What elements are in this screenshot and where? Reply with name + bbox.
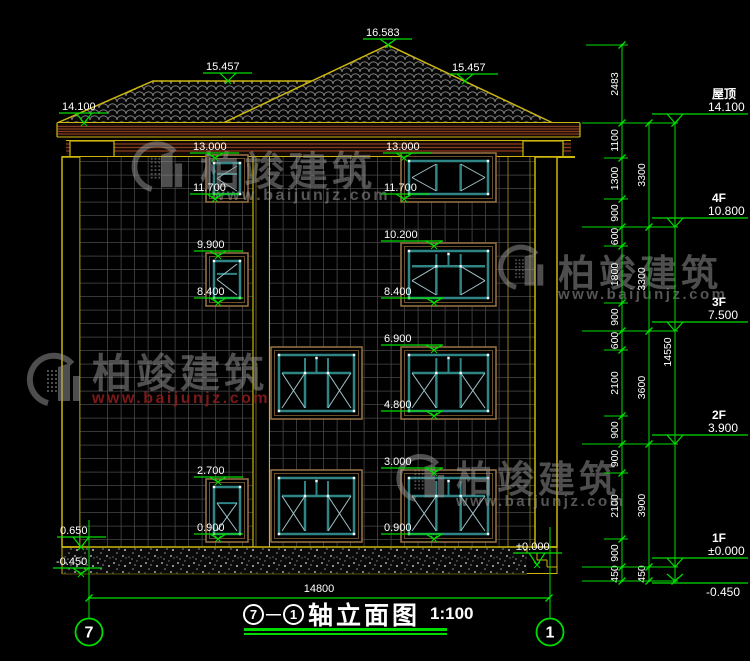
logo-window-dot (47, 370, 49, 372)
dim-chain-total: 14550 (662, 120, 679, 585)
logo-tower-2 (73, 376, 80, 401)
title-underline-thin (244, 633, 447, 635)
logo-window-dot (418, 473, 420, 475)
floor-elevation: -0.450 (706, 585, 740, 599)
logo-window-dot (415, 473, 417, 475)
floor-elevation: ±0.000 (708, 544, 745, 558)
logo-window-dot (422, 473, 424, 475)
elevation-value: -0.450 (56, 556, 87, 568)
logo-window-dot (158, 165, 160, 167)
floor-label: 4F (712, 191, 726, 205)
logo-window-dot (519, 266, 521, 268)
elevation-value: 0.650 (60, 525, 88, 537)
elevation-value: 13.000 (386, 141, 420, 153)
logo-window-dot (415, 484, 417, 486)
frame-node (487, 193, 489, 195)
logo-window-dot (55, 370, 57, 372)
window-big-transom-x (271, 347, 362, 419)
frame-node (487, 250, 489, 252)
dim-value: 3300 (636, 267, 648, 291)
frame-node (435, 495, 437, 497)
logo-window-dot (515, 276, 517, 278)
elevation-value: 8.400 (384, 286, 412, 298)
watermark-url: www.baijunjz.com (211, 187, 390, 204)
dim-value: 600 (609, 228, 621, 246)
logo-window-dot (55, 390, 57, 392)
title-scale: 1:100 (430, 604, 473, 624)
frame-node (435, 372, 437, 374)
logo-window-dot (422, 484, 424, 486)
window-big-transom-x (271, 470, 362, 542)
dim-value: 2100 (609, 371, 621, 395)
logo-window-dot (515, 263, 517, 265)
logo-window-dot (155, 177, 157, 179)
logo-window-dot (422, 488, 424, 490)
watermark-url: www.baijunjz.com (455, 493, 625, 510)
elevation-value: 3.000 (384, 456, 412, 468)
dim-value: 3900 (636, 494, 648, 518)
logo-window-dot (415, 480, 417, 482)
logo-window-dot (522, 266, 524, 268)
level-triangle (667, 114, 683, 123)
logo-window-dot (519, 276, 521, 278)
frame-node (239, 486, 241, 488)
logo-window-dot (151, 158, 153, 160)
elevation-value: 8.400 (197, 286, 225, 298)
logo-window-dot (415, 470, 417, 472)
dim-value: 450 (636, 565, 648, 583)
logo-window-dot (47, 374, 49, 376)
title-text: 轴立面图 (308, 596, 420, 632)
logo-tower-2 (537, 264, 543, 285)
logo-window-dot (51, 382, 53, 384)
logo-window-dot (418, 480, 420, 482)
elevation-value: ±0.000 (516, 541, 550, 553)
elevation-value: 9.900 (197, 239, 225, 251)
dim-value: 900 (609, 544, 621, 562)
elevation-value: 2.700 (197, 465, 225, 477)
frame-node (435, 265, 437, 267)
logo-window-dot (418, 470, 420, 472)
logo-window-dot (158, 173, 160, 175)
dim-value: 900 (609, 421, 621, 439)
dim-value: 3300 (636, 163, 648, 187)
frame-node (408, 354, 410, 356)
logo-window-dot (51, 390, 53, 392)
logo-window-dot (418, 488, 420, 490)
dim-value: 900 (609, 308, 621, 326)
marker-triangle (220, 73, 236, 81)
logo-window-dot (522, 259, 524, 261)
logo-window-dot (515, 269, 517, 271)
logo-window-dot (151, 165, 153, 167)
frame-node (239, 260, 241, 262)
logo-window-dot (151, 177, 153, 179)
floor-marker-1F: 1F±0.000 (652, 531, 748, 567)
dim-value: 2483 (609, 72, 621, 96)
logo-window-dot (519, 259, 521, 261)
floor-marker--0.450: -0.450 (652, 574, 748, 599)
dim-value: 900 (609, 204, 621, 222)
elevation-value: 10.200 (384, 229, 418, 241)
logo-window-dot (158, 162, 160, 164)
axis-end-bubble: 1 (283, 604, 304, 625)
logo-window-dot (151, 169, 153, 171)
logo-window-dot (47, 382, 49, 384)
logo-window-dot (418, 477, 420, 479)
logo-window-dot (519, 273, 521, 275)
logo-tower-2 (438, 475, 444, 498)
frame-node (213, 486, 215, 488)
logo-window-dot (55, 378, 57, 380)
logo-window-dot (415, 488, 417, 490)
dim-value: 1800 (609, 263, 621, 287)
logo-window-dot (155, 173, 157, 175)
elevation-value: 11.700 (193, 182, 226, 194)
title-separator: — (266, 606, 281, 623)
logo-window-dot (158, 177, 160, 179)
frame-node (304, 372, 306, 374)
frame-node (459, 265, 461, 267)
elevation-marker-16.583: 16.583 (363, 27, 412, 48)
logo-window-dot (155, 158, 157, 160)
logo-window-dot (55, 386, 57, 388)
watermark-url: www.baijunjz.com (91, 390, 270, 407)
logo-tower-2 (175, 163, 182, 187)
elevation-value: 4.800 (384, 399, 412, 411)
logo-window-dot (51, 370, 53, 372)
window-big-transom-x (401, 347, 496, 419)
dim-value: 600 (609, 332, 621, 350)
logo-window-dot (151, 162, 153, 164)
floor-label: 3F (712, 295, 726, 309)
dim-value: 450 (609, 565, 621, 583)
frame-node (353, 410, 355, 412)
marker-triangle (380, 39, 396, 45)
logo-window-dot (522, 263, 524, 265)
logo-window-dot (51, 386, 53, 388)
drawing-title: 7 — 1 轴立面图 1:100 (243, 601, 474, 627)
elevation-value: 13.000 (193, 141, 227, 153)
elevation-value: 15.457 (206, 61, 240, 73)
logo-window-dot (522, 273, 524, 275)
frame-node (459, 372, 461, 374)
frame-node (315, 357, 317, 359)
logo-window-dot (515, 273, 517, 275)
elevation-value: 11.700 (384, 182, 417, 194)
elevation-value: 14.100 (62, 101, 96, 113)
frame-node (327, 372, 329, 374)
frame-node (353, 477, 355, 479)
frame-node (213, 260, 215, 262)
logo-window-dot (522, 276, 524, 278)
frame-node (408, 250, 410, 252)
floor-label: 屋顶 (712, 87, 736, 101)
frame-node (278, 533, 280, 535)
frame-node (487, 533, 489, 535)
cornice-band-1 (57, 123, 580, 137)
frame-node (487, 410, 489, 412)
dim-value: 14800 (304, 583, 335, 595)
elevation-value: 0.900 (197, 522, 225, 534)
logo-window-dot (515, 266, 517, 268)
floor-marker-2F: 2F3.900 (652, 408, 748, 444)
right-pilaster-capital (523, 141, 563, 157)
frame-node (447, 357, 449, 359)
axis-start-bubble: 7 (243, 604, 264, 625)
logo-window-dot (519, 269, 521, 271)
logo-tower (161, 151, 172, 187)
cad-elevation-screen: 柏竣建筑www.baijunjz.com柏竣建筑www.baijunjz.com… (0, 0, 750, 661)
dim-chain-floor: 3300330036003900450 (636, 120, 653, 585)
dim-value: 900 (609, 450, 621, 468)
logo-window-dot (155, 162, 157, 164)
logo-window-dot (418, 484, 420, 486)
foundation-stipple (62, 548, 527, 574)
logo-window-dot (422, 470, 424, 472)
floor-marker-屋顶: 屋顶14.100 (652, 87, 748, 123)
logo-window-dot (415, 477, 417, 479)
floor-marker-4F: 4F10.800 (652, 191, 748, 227)
floor-elevation: 10.800 (708, 204, 745, 218)
logo-window-dot (519, 263, 521, 265)
frame-node (353, 354, 355, 356)
logo-window-dot (155, 165, 157, 167)
window-sash-frame (409, 161, 488, 194)
logo-window-dot (158, 169, 160, 171)
frame-node (487, 160, 489, 162)
logo-tower (525, 253, 535, 285)
elevation-value: 15.457 (452, 62, 486, 74)
left-corner-pilaster (62, 157, 80, 547)
frame-node (304, 495, 306, 497)
elevation-value: 0.900 (384, 522, 412, 534)
floor-elevation: 14.100 (708, 100, 745, 114)
frame-node (408, 477, 410, 479)
left-pilaster-capital (70, 141, 114, 157)
frame-node (447, 480, 449, 482)
elevation-value: 16.583 (366, 27, 400, 39)
logo-window-dot (47, 378, 49, 380)
logo-window-dot (422, 477, 424, 479)
logo-window-dot (47, 390, 49, 392)
frame-node (278, 477, 280, 479)
frame-node (447, 253, 449, 255)
elevation-drawing: 柏竣建筑www.baijunjz.com柏竣建筑www.baijunjz.com… (0, 0, 750, 661)
logo-window-dot (515, 259, 517, 261)
logo-window-dot (158, 158, 160, 160)
dim-value: 2100 (609, 494, 621, 518)
watermark: 柏竣建筑www.baijunjz.com (30, 352, 270, 407)
logo-window-dot (51, 374, 53, 376)
logo-window-dot (151, 173, 153, 175)
floor-elevation: 7.500 (708, 308, 738, 322)
frame-node (315, 480, 317, 482)
axis-number: 7 (85, 625, 94, 642)
logo-window-dot (422, 480, 424, 482)
frame-node (278, 354, 280, 356)
frame-node (487, 354, 489, 356)
logo-window-dot (55, 374, 57, 376)
floor-label: 2F (712, 408, 726, 422)
logo-window-dot (51, 378, 53, 380)
elevation-value: 6.900 (384, 333, 412, 345)
dim-value: 1100 (609, 129, 621, 152)
dim-value: 3600 (636, 376, 648, 400)
frame-node (353, 533, 355, 535)
dim-value: 1300 (609, 167, 621, 191)
frame-node (487, 297, 489, 299)
floor-label: 1F (712, 531, 726, 545)
window-big-single (401, 153, 496, 202)
logo-window-dot (522, 269, 524, 271)
floor-elevation: 3.900 (708, 421, 738, 435)
frame-node (278, 410, 280, 412)
logo-window-dot (47, 386, 49, 388)
axis-number: 1 (546, 625, 555, 642)
logo-window-dot (155, 169, 157, 171)
frame-node (408, 160, 410, 162)
title-underline-thick (244, 628, 447, 631)
logo-window-dot (55, 382, 57, 384)
dim-value: 14550 (662, 337, 674, 366)
logo-tower (58, 363, 70, 401)
window-big-transom-v (401, 243, 496, 306)
frame-node (327, 495, 329, 497)
